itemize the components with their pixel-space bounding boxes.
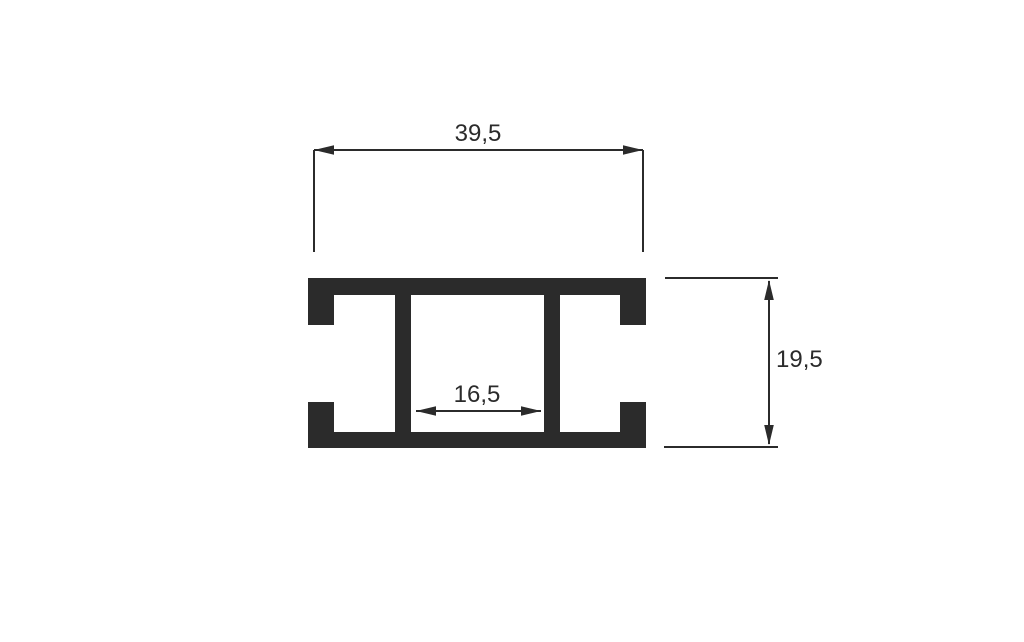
dim-outer-width-arrowhead-right — [623, 145, 643, 155]
dim-outer-width-arrowhead-left — [314, 145, 334, 155]
dim-outer-height: 19,5 — [664, 278, 823, 447]
dim-outer-height-arrowhead-top — [764, 280, 774, 300]
profile-left-top-lip — [308, 294, 334, 325]
dim-outer-height-arrowhead-bottom — [764, 425, 774, 445]
profile-left-bottom-lip — [308, 402, 334, 433]
profile-bottom-flange — [308, 432, 646, 448]
dim-outer-width: 39,5 — [314, 120, 643, 252]
dim-inner-width-arrowhead-right — [521, 406, 541, 416]
drawing-page: 39,5 19,5 16,5 — [0, 0, 1024, 642]
profile-top-flange — [308, 278, 646, 295]
dim-outer-width-label: 39,5 — [455, 120, 502, 147]
profile-right-top-lip — [620, 294, 646, 325]
profile-right-bottom-lip — [620, 402, 646, 433]
dim-inner-width-arrowhead-left — [416, 406, 436, 416]
dim-outer-height-label: 19,5 — [776, 346, 823, 373]
profile-right-web — [544, 294, 560, 433]
dim-inner-width: 16,5 — [416, 381, 541, 416]
profile-cross-section — [308, 278, 646, 448]
dim-inner-width-label: 16,5 — [454, 381, 501, 408]
technical-drawing-canvas: 39,5 19,5 16,5 — [0, 0, 1024, 642]
profile-left-web — [395, 294, 411, 433]
